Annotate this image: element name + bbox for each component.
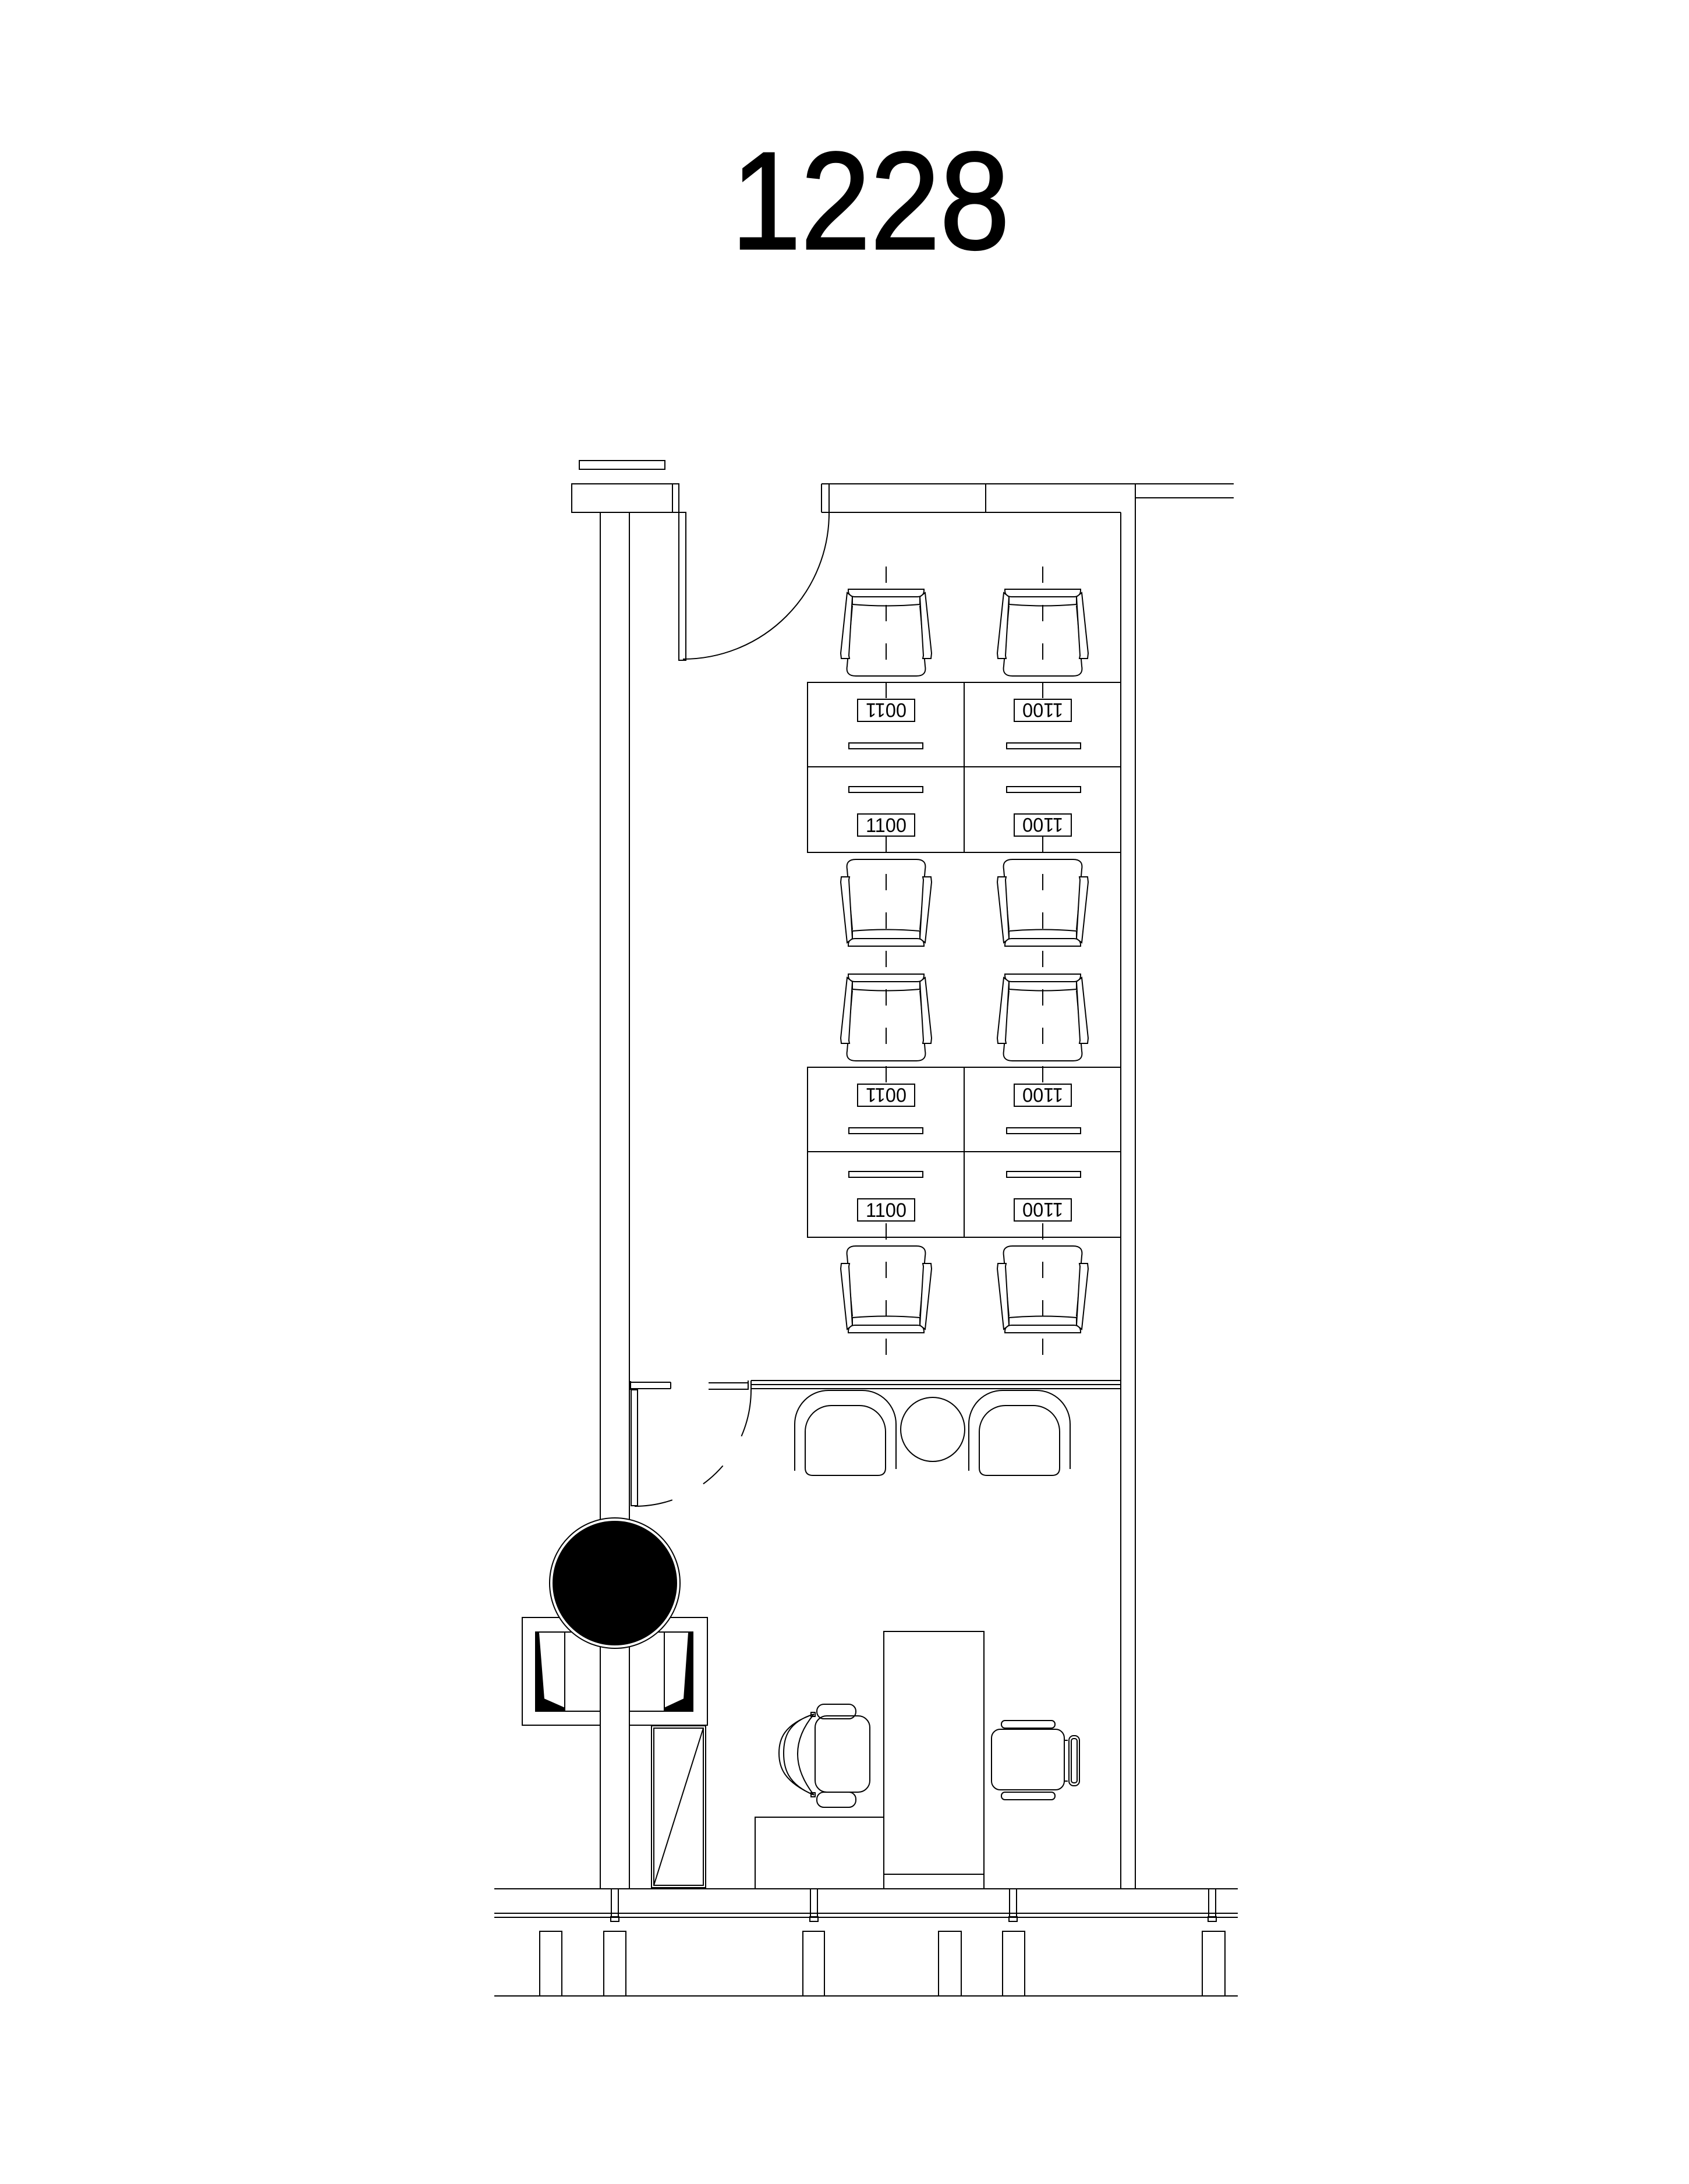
svg-text:1100: 1100	[1022, 1084, 1063, 1106]
svg-text:1100: 1100	[1022, 813, 1063, 836]
svg-text:1100: 1100	[1022, 1198, 1063, 1220]
svg-text:0011: 0011	[866, 699, 907, 721]
svg-text:1228: 1228	[731, 124, 1010, 278]
svg-text:0011: 0011	[866, 1084, 907, 1106]
svg-text:1100: 1100	[1022, 699, 1063, 721]
svg-text:1100: 1100	[866, 1199, 907, 1222]
svg-text:1100: 1100	[866, 815, 907, 837]
